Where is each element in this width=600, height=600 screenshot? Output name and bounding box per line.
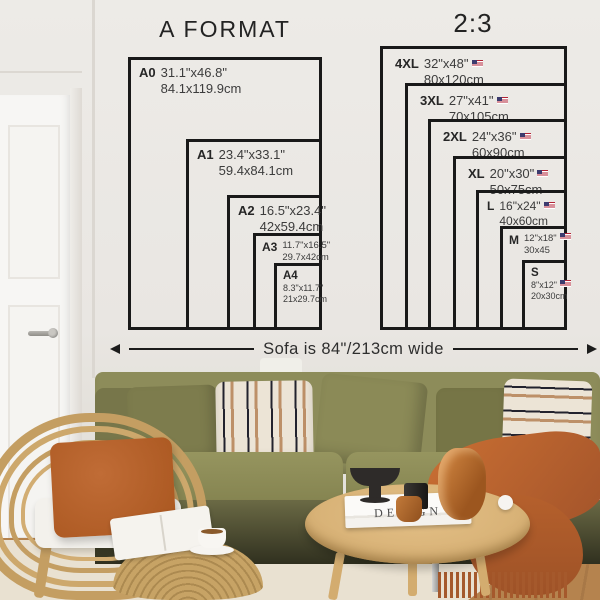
size-inches: 16"x24": [499, 199, 540, 213]
size-inches: 8"x12": [531, 280, 557, 290]
size-inches: 12"x18": [524, 233, 557, 244]
wall-molding: [0, 71, 82, 73]
door-handle-knob: [48, 328, 58, 338]
us-flag-icon: [544, 202, 555, 209]
a-format-title: A FORMAT: [95, 16, 355, 43]
size-inches: 32"x48": [424, 56, 469, 71]
size-cm: 84.1x119.9cm: [161, 81, 242, 97]
wall-trim: [92, 0, 95, 378]
size-cm: 59.4x84.1cm: [219, 163, 293, 179]
arrow-left-icon: [110, 344, 120, 354]
coffee: [201, 529, 223, 534]
size-code: A0: [139, 65, 156, 97]
door-panel: [8, 125, 60, 279]
amber-glass-vase: [438, 448, 486, 520]
amber-glass-jar: [396, 496, 422, 522]
us-flag-icon: [520, 133, 531, 140]
size-code: A2: [238, 203, 255, 235]
black-bowl-base: [360, 497, 390, 503]
throw-fringe: [438, 572, 568, 598]
size-code: S: [531, 266, 562, 280]
arrow-line: [453, 348, 578, 350]
size-code: A4: [283, 269, 317, 283]
size-box-a4: A48.3"x11.7"21x29.7cm: [274, 263, 322, 330]
ratio-title: 2:3: [393, 8, 553, 39]
size-inches: 16.5"x23.4": [260, 203, 326, 219]
arrow-line: [129, 348, 254, 350]
size-code: A3: [262, 240, 277, 264]
size-inches: 23.4"x33.1": [219, 147, 293, 163]
size-code: L: [487, 199, 494, 229]
us-flag-icon: [537, 170, 548, 177]
size-inches: 27"x41": [449, 93, 494, 108]
us-flag-icon: [560, 280, 571, 287]
size-inches: 11.7"x16.5": [282, 240, 330, 252]
sofa-width-annotation: Sofa is 84"/213cm wide: [110, 340, 597, 358]
size-inches: 20"x30": [490, 166, 535, 181]
size-cm: 29.7x42cm: [282, 252, 330, 264]
size-code: A1: [197, 147, 214, 179]
sofa-width-label: Sofa is 84"/213cm wide: [263, 340, 444, 359]
size-cm: 21x29.7cm: [283, 294, 317, 305]
size-code: M: [509, 233, 519, 257]
us-flag-icon: [560, 233, 571, 240]
size-inches: 24"x36": [472, 129, 517, 144]
size-cm: 30x45: [524, 245, 571, 257]
arrow-right-icon: [587, 344, 597, 354]
size-inches: 31.1"x46.8": [161, 65, 242, 81]
size-inches: 8.3"x11.7": [283, 283, 317, 294]
size-cm: 20x30cm: [531, 291, 562, 302]
white-decor-ball: [498, 495, 513, 510]
us-flag-icon: [472, 60, 483, 67]
size-box-s: S8"x12"20x30cm: [522, 260, 567, 330]
poster-size-guide-mockup: DESIGN A FORMAT A031.1"x46.8"84.1x119.9c…: [0, 0, 600, 600]
us-flag-icon: [497, 97, 508, 104]
